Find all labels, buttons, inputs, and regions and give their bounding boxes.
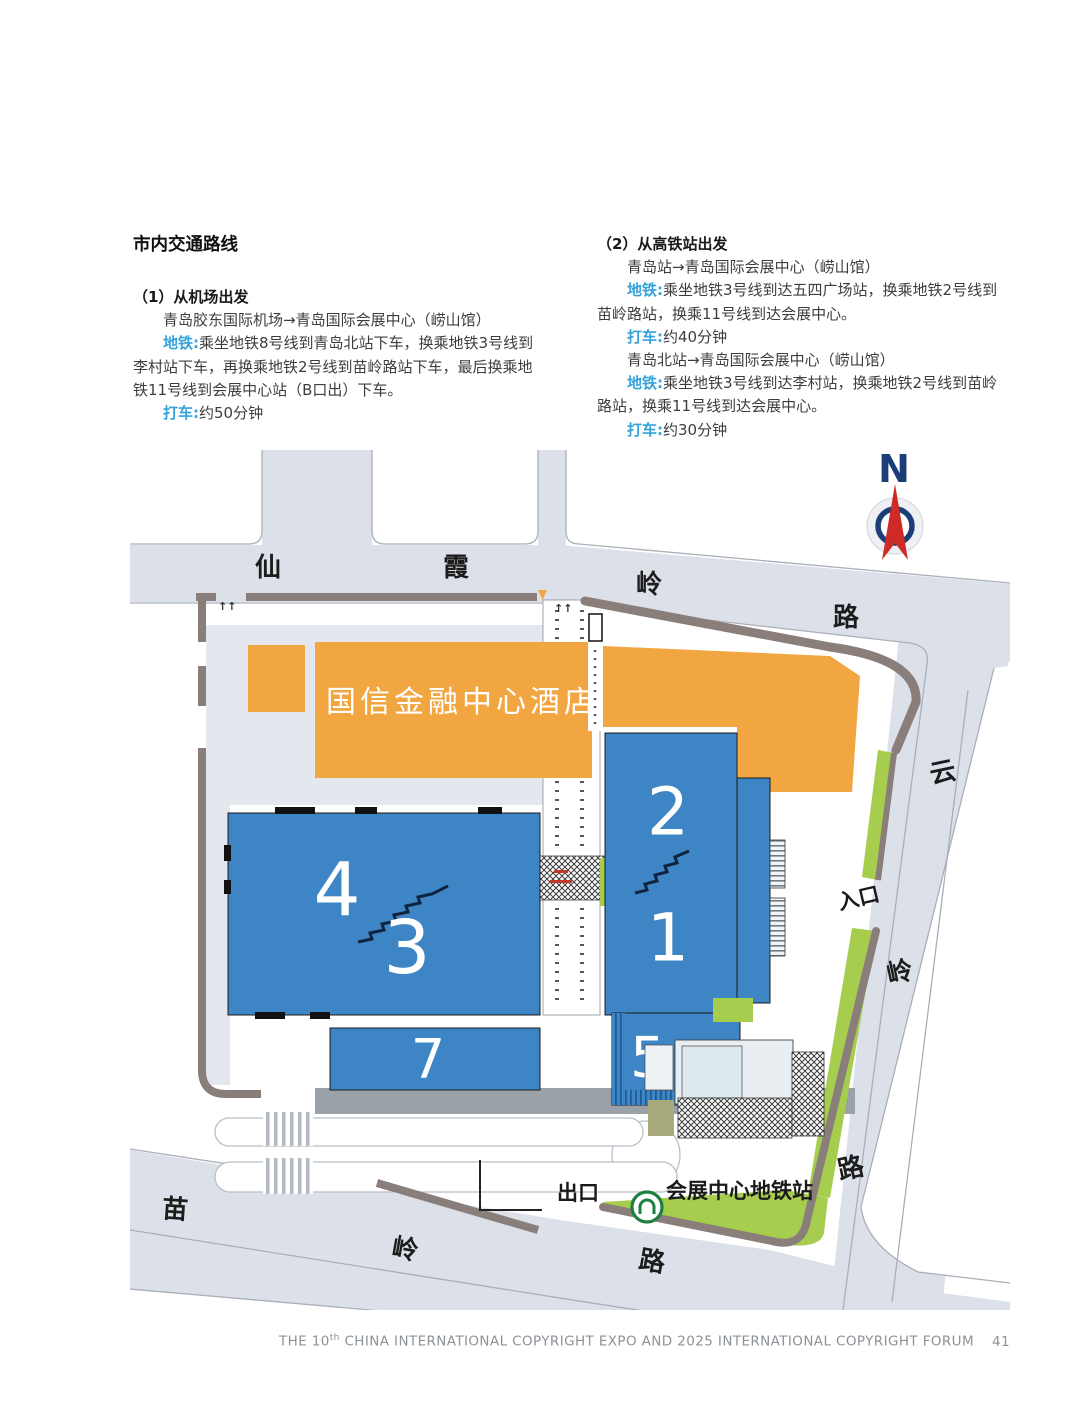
road-label: 苗 (161, 1194, 189, 1226)
footer-text: CHINA INTERNATIONAL COPYRIGHT EXPO AND 2… (340, 1334, 974, 1350)
taxi-label: 打车: (627, 328, 663, 346)
rail-metro-paragraph-2: 地铁:乘坐地铁3号线到达李村站，换乘地铁2号线到苗岭路站，换乘11号线到达会展中… (597, 372, 1011, 418)
metro-label: 地铁: (163, 334, 199, 352)
rail-heading: （2）从高铁站出发 (597, 233, 1011, 256)
route-from-rail: （2）从高铁站出发 青岛站→青岛国际会展中心（崂山馆） 地铁:乘坐地铁3号线到达… (597, 233, 1011, 442)
hall-number-2: 2 (647, 774, 689, 851)
hall-number-1: 1 (647, 900, 689, 977)
road-label: 路 (833, 602, 860, 633)
route-from-airport: （1）从机场出发 青岛胶东国际机场→青岛国际会展中心（崂山馆） 地铁:乘坐地铁8… (133, 286, 546, 425)
airport-taxi-paragraph: 打车:约50分钟 (133, 402, 546, 425)
taxi-text: 约50分钟 (199, 404, 263, 422)
pedestrian-arrows-icon: ↑↑ (218, 600, 236, 613)
taxi-label: 打车: (627, 421, 663, 439)
road-label: 岭 (390, 1233, 421, 1267)
road-label: 霞 (443, 553, 470, 583)
road-branch-left (262, 450, 372, 547)
road-branch-mid (538, 450, 566, 547)
footer-superscript: th (330, 1333, 340, 1343)
compass-rose: N (867, 450, 923, 560)
site-map: 国信金融中心酒店 ↑↑ (130, 450, 1010, 1310)
metro-label: 地铁: (627, 374, 663, 392)
footer-text: THE 10 (279, 1334, 330, 1350)
road-label: 岭 (636, 570, 662, 600)
hall-7: 7 (330, 1028, 540, 1091)
crosswalk (263, 1112, 313, 1146)
airport-metro-paragraph: 地铁:乘坐地铁8号线到青岛北站下车，换乘地铁3号线到李村站下车，再换乘地铁2号线… (133, 332, 546, 402)
airport-heading: （1）从机场出发 (133, 286, 546, 309)
annex-buildings (645, 1040, 824, 1138)
page-number: 41 (992, 1334, 1010, 1350)
rail-taxi-paragraph-1: 打车:约40分钟 (597, 326, 1011, 349)
hall-number-7: 7 (411, 1028, 445, 1091)
rail-route-line-2: 青岛北站→青岛国际会展中心（崂山馆） (597, 349, 1011, 372)
metro-label: 地铁: (627, 281, 663, 299)
corridor-crosswalk (540, 856, 604, 900)
hall-4-3: 4 3 (224, 807, 540, 1019)
rail-metro-paragraph-1: 地铁:乘坐地铁3号线到达五四广场站，换乘地铁2号线到苗岭路站，换乘11号线到达会… (597, 279, 1011, 325)
compass-n-label: N (878, 450, 910, 491)
corridor-side-strip (588, 603, 603, 731)
section-title: 市内交通路线 (133, 233, 238, 257)
taxi-text: 约30分钟 (663, 421, 727, 439)
green-patch (713, 998, 753, 1022)
taxi-text: 约40分钟 (663, 328, 727, 346)
road-label: 仙 (255, 553, 281, 583)
exit-label: 出口 (557, 1181, 599, 1205)
airport-route-line: 青岛胶东国际机场→青岛国际会展中心（崂山馆） (133, 309, 546, 332)
hall-number-3: 3 (383, 905, 430, 991)
hall-number-4: 4 (313, 847, 360, 933)
page-footer: THE 10th CHINA INTERNATIONAL COPYRIGHT E… (279, 1333, 1010, 1350)
crosswalk (263, 1158, 313, 1194)
hotel-label: 国信金融中心酒店 (326, 685, 598, 720)
rail-route-line-1: 青岛站→青岛国际会展中心（崂山馆） (597, 256, 1011, 279)
gate-arrows: ↑↑ ↑↑ (218, 600, 572, 615)
rail-taxi-paragraph-2: 打车:约30分钟 (597, 419, 1011, 442)
pedestrian-arrows-icon: ↑↑ (554, 602, 572, 615)
hotel-building: 国信金融中心酒店 (248, 642, 860, 792)
taxi-label: 打车: (163, 404, 199, 422)
metro-station-marker (632, 1192, 662, 1222)
gate-door (589, 614, 602, 641)
metro-station-label: 会展中心地铁站 (666, 1179, 813, 1203)
